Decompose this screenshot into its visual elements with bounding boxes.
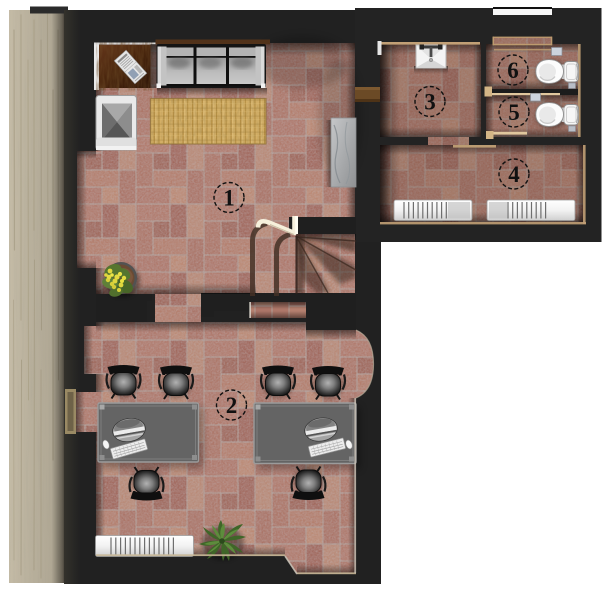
svg-text:6: 6 [507,58,519,83]
svg-text:5: 5 [508,100,520,125]
svg-text:4: 4 [508,162,520,187]
svg-text:3: 3 [424,90,436,115]
svg-text:1: 1 [223,186,235,211]
svg-text:2: 2 [226,393,238,418]
